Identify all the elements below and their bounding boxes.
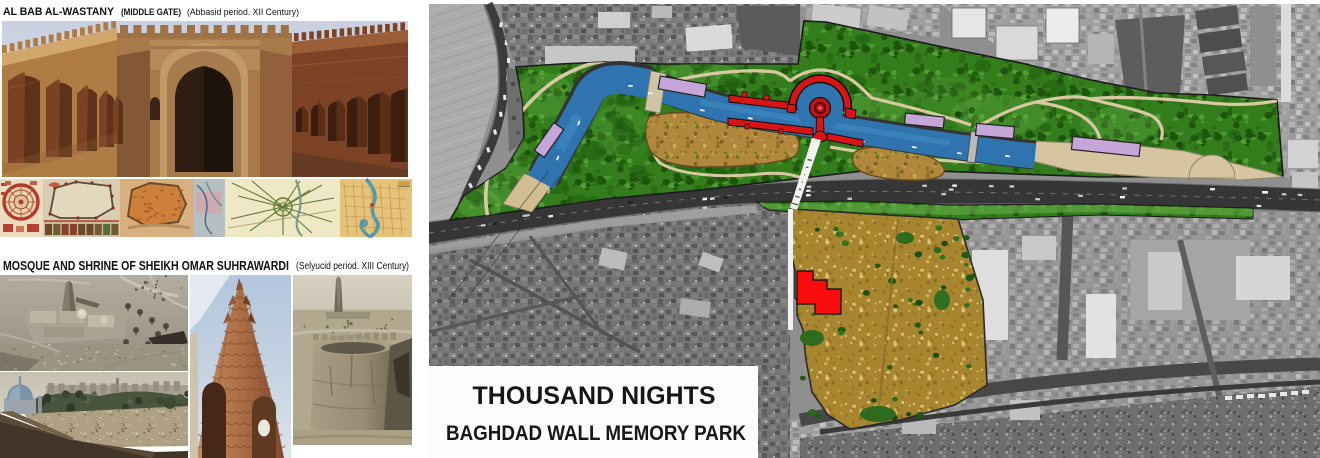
svg-text:MOSQUE AND SHRINE OF SHEIKH OM: MOSQUE AND SHRINE OF SHEIKH OMAR SUHRAWA… xyxy=(3,258,289,273)
svg-text:(Abbasid period. XII Century): (Abbasid period. XII Century) xyxy=(187,7,299,18)
svg-text:AL BAB AL-WASTANY: AL BAB AL-WASTANY xyxy=(3,6,115,18)
svg-text:(Selyucid period. XIII Century: (Selyucid period. XIII Century) xyxy=(296,261,409,272)
svg-text:(MIDDLE GATE): (MIDDLE GATE) xyxy=(121,7,181,18)
svg-text:BAGHDAD WALL MEMORY PARK: BAGHDAD WALL MEMORY PARK xyxy=(446,422,746,445)
svg-text:THOUSAND NIGHTS: THOUSAND NIGHTS xyxy=(473,382,716,410)
